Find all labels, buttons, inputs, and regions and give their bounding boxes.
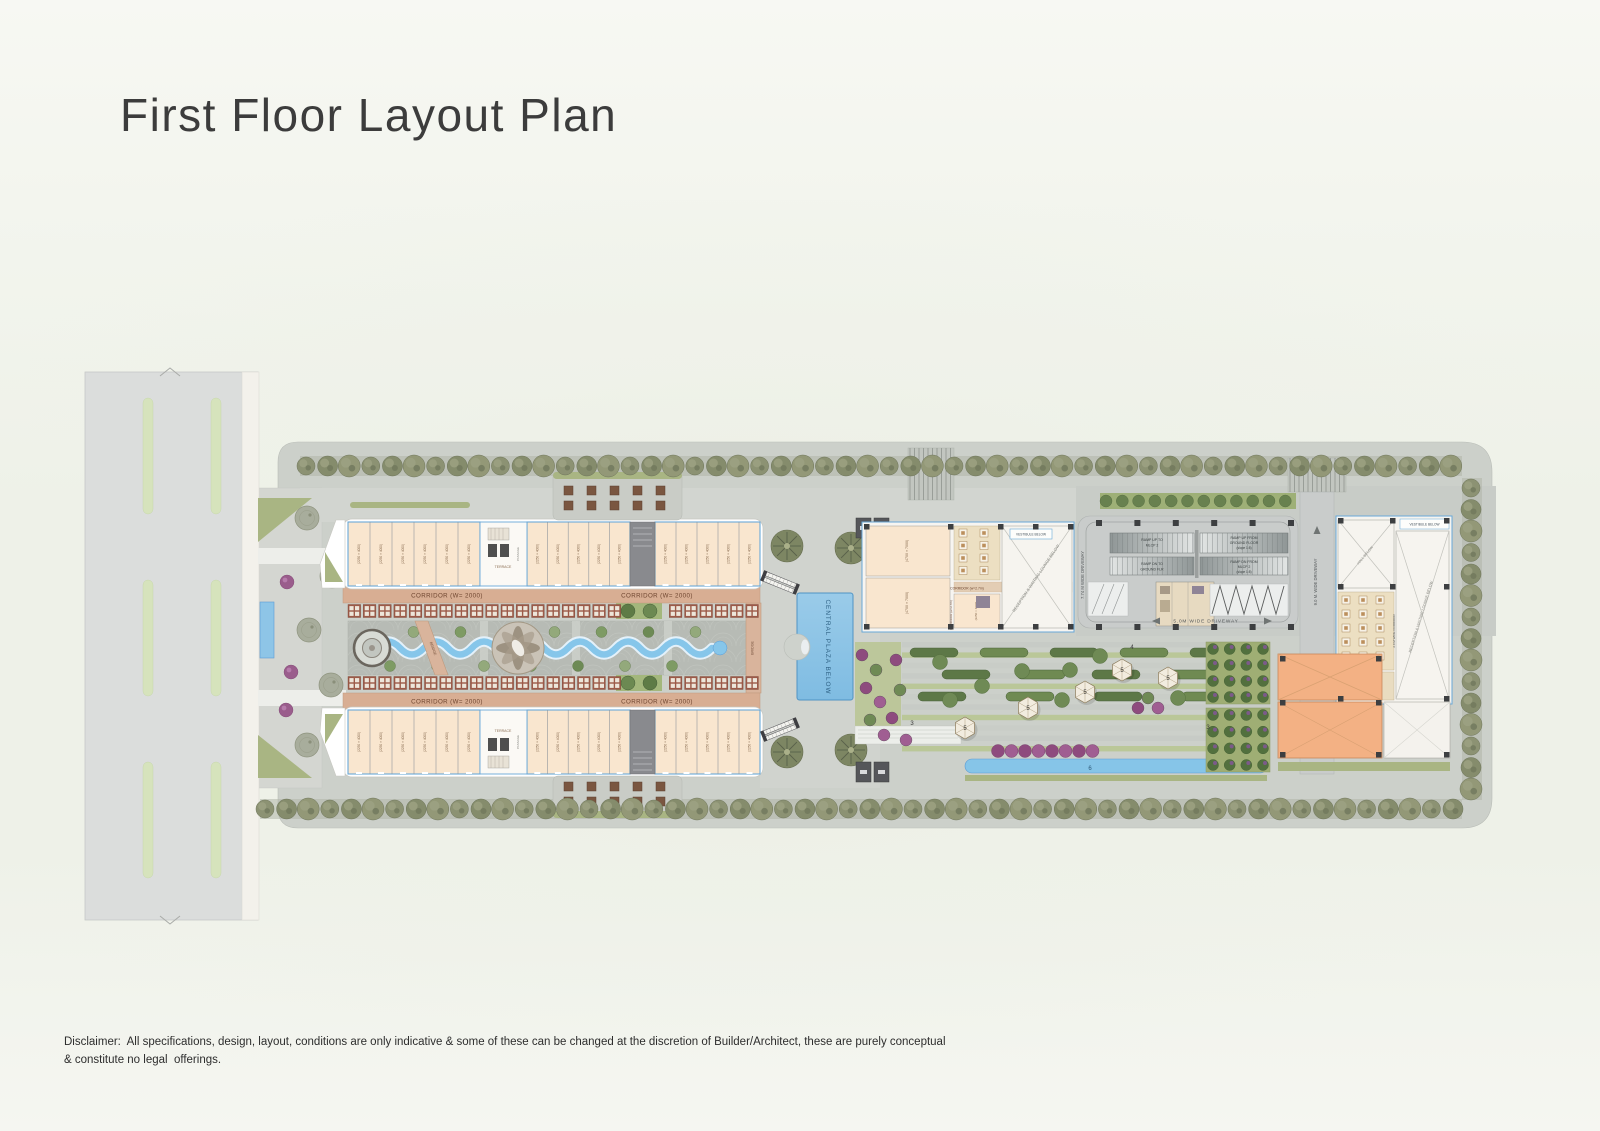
ramp-label: MLCP 2 [1238, 565, 1251, 569]
svg-text:(2250 × 4000): (2250 × 4000) [535, 732, 539, 752]
entry-water-feature [260, 602, 274, 658]
ramp-label: RAMP DN TO [1141, 562, 1163, 566]
disclaimer-line1: Disclaimer: All specifications, design, … [64, 1036, 946, 1048]
palm-tree-icon [771, 530, 803, 562]
driveway-774-label: 7.74 M WIDE DRIVEWAY [1080, 551, 1085, 599]
sidewalk [242, 372, 259, 920]
svg-text:(2250 × 4000): (2250 × 4000) [535, 544, 539, 564]
svg-text:(2250 × 4000): (2250 × 4000) [467, 544, 471, 564]
svg-text:(2250 × 4000): (2250 × 4000) [597, 544, 601, 564]
palm-court-b [1206, 708, 1270, 772]
floor-plan: BRIDGE BRIDGE CORRIDOR (W= 2000) CORRIDO… [60, 230, 1500, 1020]
tree-icon [295, 733, 319, 757]
road-surface [85, 372, 258, 920]
corridor-bottom [343, 693, 760, 709]
core-top: TERRACE PASSAGE [480, 522, 527, 586]
stair-block-bottom [630, 710, 655, 774]
svg-text:(2250 × 4000): (2250 × 4000) [445, 544, 449, 564]
svg-text:(2250 × 4000): (2250 × 4000) [597, 732, 601, 752]
tree-icon [297, 618, 321, 642]
driveway-9-label: 9.0 M. WIDE DRIVEWAY [1313, 558, 1318, 605]
units-top-c: (2250 × 4000)(2250 × 4000)(2250 × 4000)(… [655, 522, 760, 586]
bridge-label: BRIDGE [751, 641, 755, 655]
kiosk-row-top [348, 605, 758, 618]
svg-text:(2250 × 4000): (2250 × 4000) [379, 732, 383, 752]
units-bot-a: (2250 × 4000)(2250 × 4000)(2250 × 4000)(… [348, 710, 480, 774]
corridor-label: CORRIDOR (W= 2000) [411, 593, 483, 600]
corridor-label: CORRIDOR (W= 2000) [621, 699, 693, 706]
corridor-20-label: 2.0 M WIDE CORRIDOR [1392, 614, 1396, 648]
ramp-label: (slope 1:8) [1236, 570, 1251, 574]
svg-text:(2250 × 4000): (2250 × 4000) [748, 544, 752, 564]
channel-green-edge [965, 775, 1267, 781]
central-plaza-label: CENTRAL PLAZA BELOW [824, 599, 831, 694]
svg-text:(2250 × 4000): (2250 × 4000) [577, 544, 581, 564]
unit-dim-label: (4700 × 7000) [905, 592, 909, 614]
corridor-label: CORRIDOR (W= 2000) [411, 699, 483, 706]
landscape-terraces: 55555 3 3 4 6 [855, 638, 1272, 781]
svg-text:(2250 × 4000): (2250 × 4000) [379, 544, 383, 564]
ramp-label: (slope 1:8) [1236, 546, 1251, 550]
svg-text:(2250 × 4000): (2250 × 4000) [618, 544, 622, 564]
svg-text:(2250 × 4000): (2250 × 4000) [467, 732, 471, 752]
stair-block-top [630, 522, 655, 586]
svg-text:(2250 × 4000): (2250 × 4000) [664, 544, 668, 564]
driveway-5-label: 5.0M WIDE DRIVEWAY [1173, 619, 1238, 625]
units-bot-c: (2250 × 4000)(2250 × 4000)(2250 × 4000)(… [655, 710, 760, 774]
terrace-top [553, 472, 682, 520]
lift-icon [488, 544, 497, 557]
page-title: First Floor Layout Plan [120, 88, 617, 142]
svg-text:(2250 × 4000): (2250 × 4000) [445, 732, 449, 752]
central-block: (4700 × 7000) (4700 × 7000) CORRIDOR (w=… [862, 522, 1074, 632]
units-top-a: (2250 × 4000)(2250 × 4000)(2250 × 4000)(… [348, 522, 480, 586]
south-hedge [1278, 762, 1450, 771]
svg-text:(2250 × 4000): (2250 × 4000) [401, 732, 405, 752]
units-top-b: (2250 × 4000)(2250 × 4000)(2250 × 4000)(… [527, 522, 630, 586]
toilet-block [976, 596, 990, 608]
vestibule-label: VESTIBULE BELOW [1410, 523, 1440, 527]
corridor-27-label: CORRIDOR (w=2.7m) [950, 587, 984, 591]
passage-label: PASSAGE [516, 547, 520, 561]
svg-text:(2250 × 4000): (2250 × 4000) [423, 544, 427, 564]
corridor-top [343, 587, 760, 603]
terrace-label: TERRACE [495, 729, 512, 733]
passage-label: PASSAGE [516, 735, 520, 749]
svg-text:(2250 × 4000): (2250 × 4000) [685, 732, 689, 752]
stream-pool [713, 641, 727, 655]
parking-stalls-right [1210, 584, 1288, 616]
core-bottom: TERRACE PASSAGE [480, 710, 527, 774]
vestibule-label: VESTIBULE BELOW [1016, 533, 1046, 537]
ramp-label: GROUND FLOOR [1230, 541, 1259, 545]
svg-text:(2250 × 4000): (2250 × 4000) [706, 732, 710, 752]
svg-text:(2250 × 4000): (2250 × 4000) [727, 732, 731, 752]
svg-text:(2250 × 4000): (2250 × 4000) [748, 732, 752, 752]
svg-text:(2250 × 4000): (2250 × 4000) [727, 544, 731, 564]
lift-icon [500, 738, 509, 751]
disclaimer-line2: & constitute no legal offerings. [64, 1054, 221, 1066]
palm-court-a [1206, 642, 1270, 704]
ramp-label: GROUND FLR [1140, 568, 1164, 572]
disclaimer: Disclaimer: All specifications, design, … [64, 1034, 999, 1070]
garden-medallion [492, 622, 544, 674]
ramp-label: RAMP DN FROM [1230, 560, 1257, 564]
hedge-strip [350, 502, 470, 508]
svg-text:(2250 × 4000): (2250 × 4000) [685, 544, 689, 564]
lift-icon [500, 544, 509, 557]
road [85, 368, 259, 924]
svg-text:(2250 × 4000): (2250 × 4000) [556, 544, 560, 564]
svg-text:(2250 × 4000): (2250 × 4000) [556, 732, 560, 752]
ramp-label: MLCP 2 [1146, 544, 1159, 548]
ramp-label: RAMP UP FROM [1230, 536, 1257, 540]
svg-text:(2250 × 4000): (2250 × 4000) [401, 544, 405, 564]
corridor-label: CORRIDOR (W= 2000) [621, 593, 693, 600]
tree-icon [295, 506, 319, 530]
tree-icon [319, 673, 343, 697]
svg-text:(2250 × 4000): (2250 × 4000) [577, 732, 581, 752]
unit-dim-label: (4700 × 7000) [905, 540, 909, 562]
svg-text:(2250 × 4000): (2250 × 4000) [357, 732, 361, 752]
terrace-label: TERRACE [495, 565, 512, 569]
svg-text:(2250 × 4000): (2250 × 4000) [664, 732, 668, 752]
svg-text:(2250 × 4000): (2250 × 4000) [706, 544, 710, 564]
palm-tree-icon [771, 736, 803, 768]
left-retail-complex: BRIDGE BRIDGE CORRIDOR (W= 2000) CORRIDO… [320, 472, 763, 818]
svg-text:(2250 × 4000): (2250 × 4000) [423, 732, 427, 752]
kiosk-row-bottom [348, 677, 758, 690]
fountain [354, 630, 390, 666]
ramp-label: RAMP UP TO [1141, 538, 1163, 542]
svg-text:(2250 × 4000): (2250 × 4000) [618, 732, 622, 752]
units-bot-b: (2250 × 4000)(2250 × 4000)(2250 × 4000)(… [527, 710, 630, 774]
svg-text:(2250 × 4000): (2250 × 4000) [357, 544, 361, 564]
lift-icon [488, 738, 497, 751]
